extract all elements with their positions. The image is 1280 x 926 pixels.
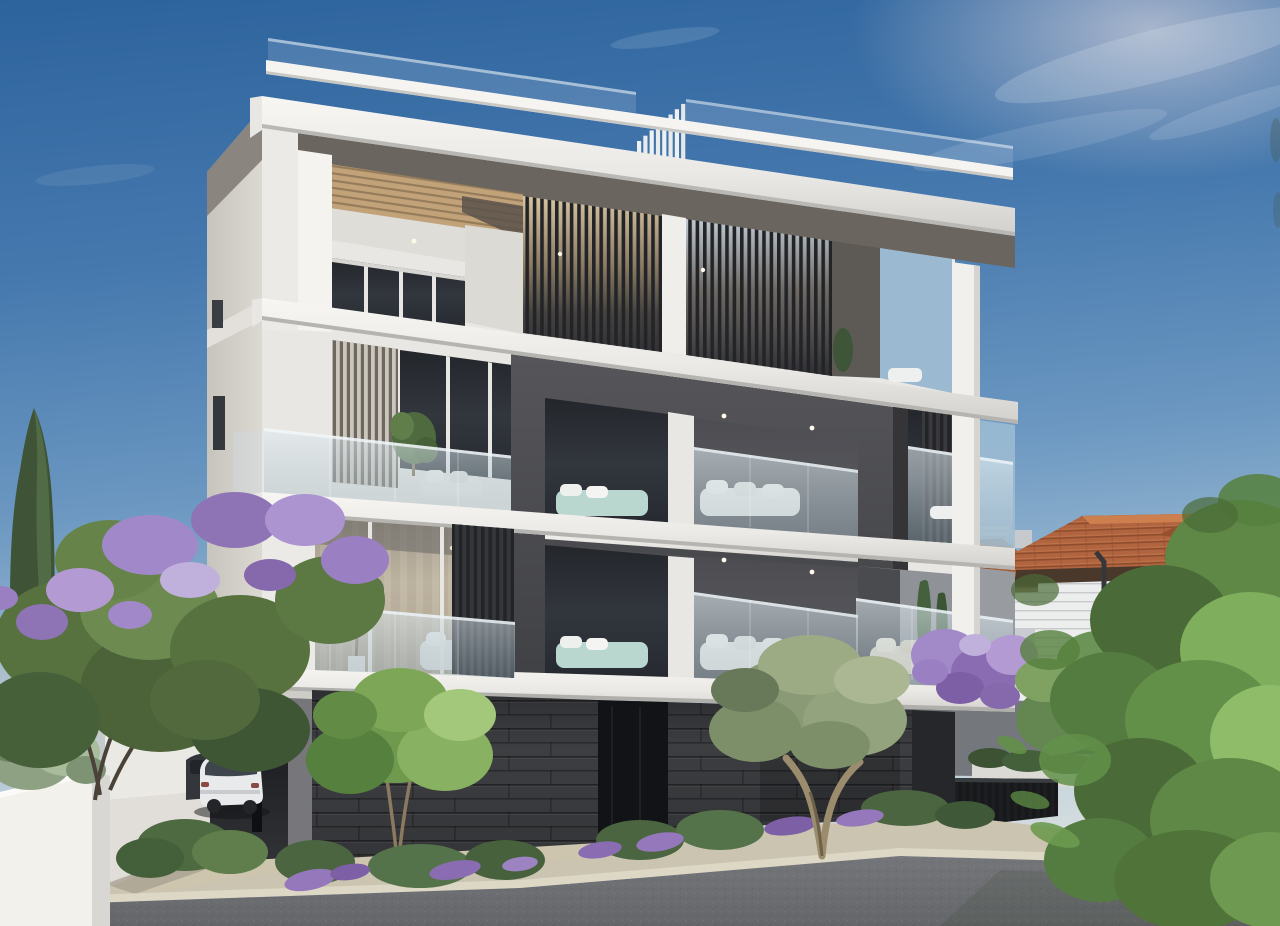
penthouse-terrace xyxy=(832,241,952,393)
west-window-small xyxy=(212,300,223,328)
penthouse-pier-mid xyxy=(465,225,523,334)
planter-box xyxy=(0,770,110,926)
scene-canvas xyxy=(0,0,1280,926)
car-wheel xyxy=(207,799,221,813)
corner-pier-left xyxy=(262,108,298,332)
f1-box-divider-pier xyxy=(668,556,694,680)
louver-panel-b xyxy=(686,219,832,376)
car-taillight xyxy=(201,782,209,787)
penthouse-pier-fins xyxy=(662,214,686,355)
west-window xyxy=(213,396,225,450)
f2-box-divider-pier xyxy=(668,412,694,530)
car-shadow xyxy=(194,805,270,819)
louver-panel-a xyxy=(523,196,662,352)
architectural-render-scene xyxy=(0,0,1280,926)
terrace-plant xyxy=(833,328,853,372)
terrace-chaise xyxy=(888,368,922,382)
